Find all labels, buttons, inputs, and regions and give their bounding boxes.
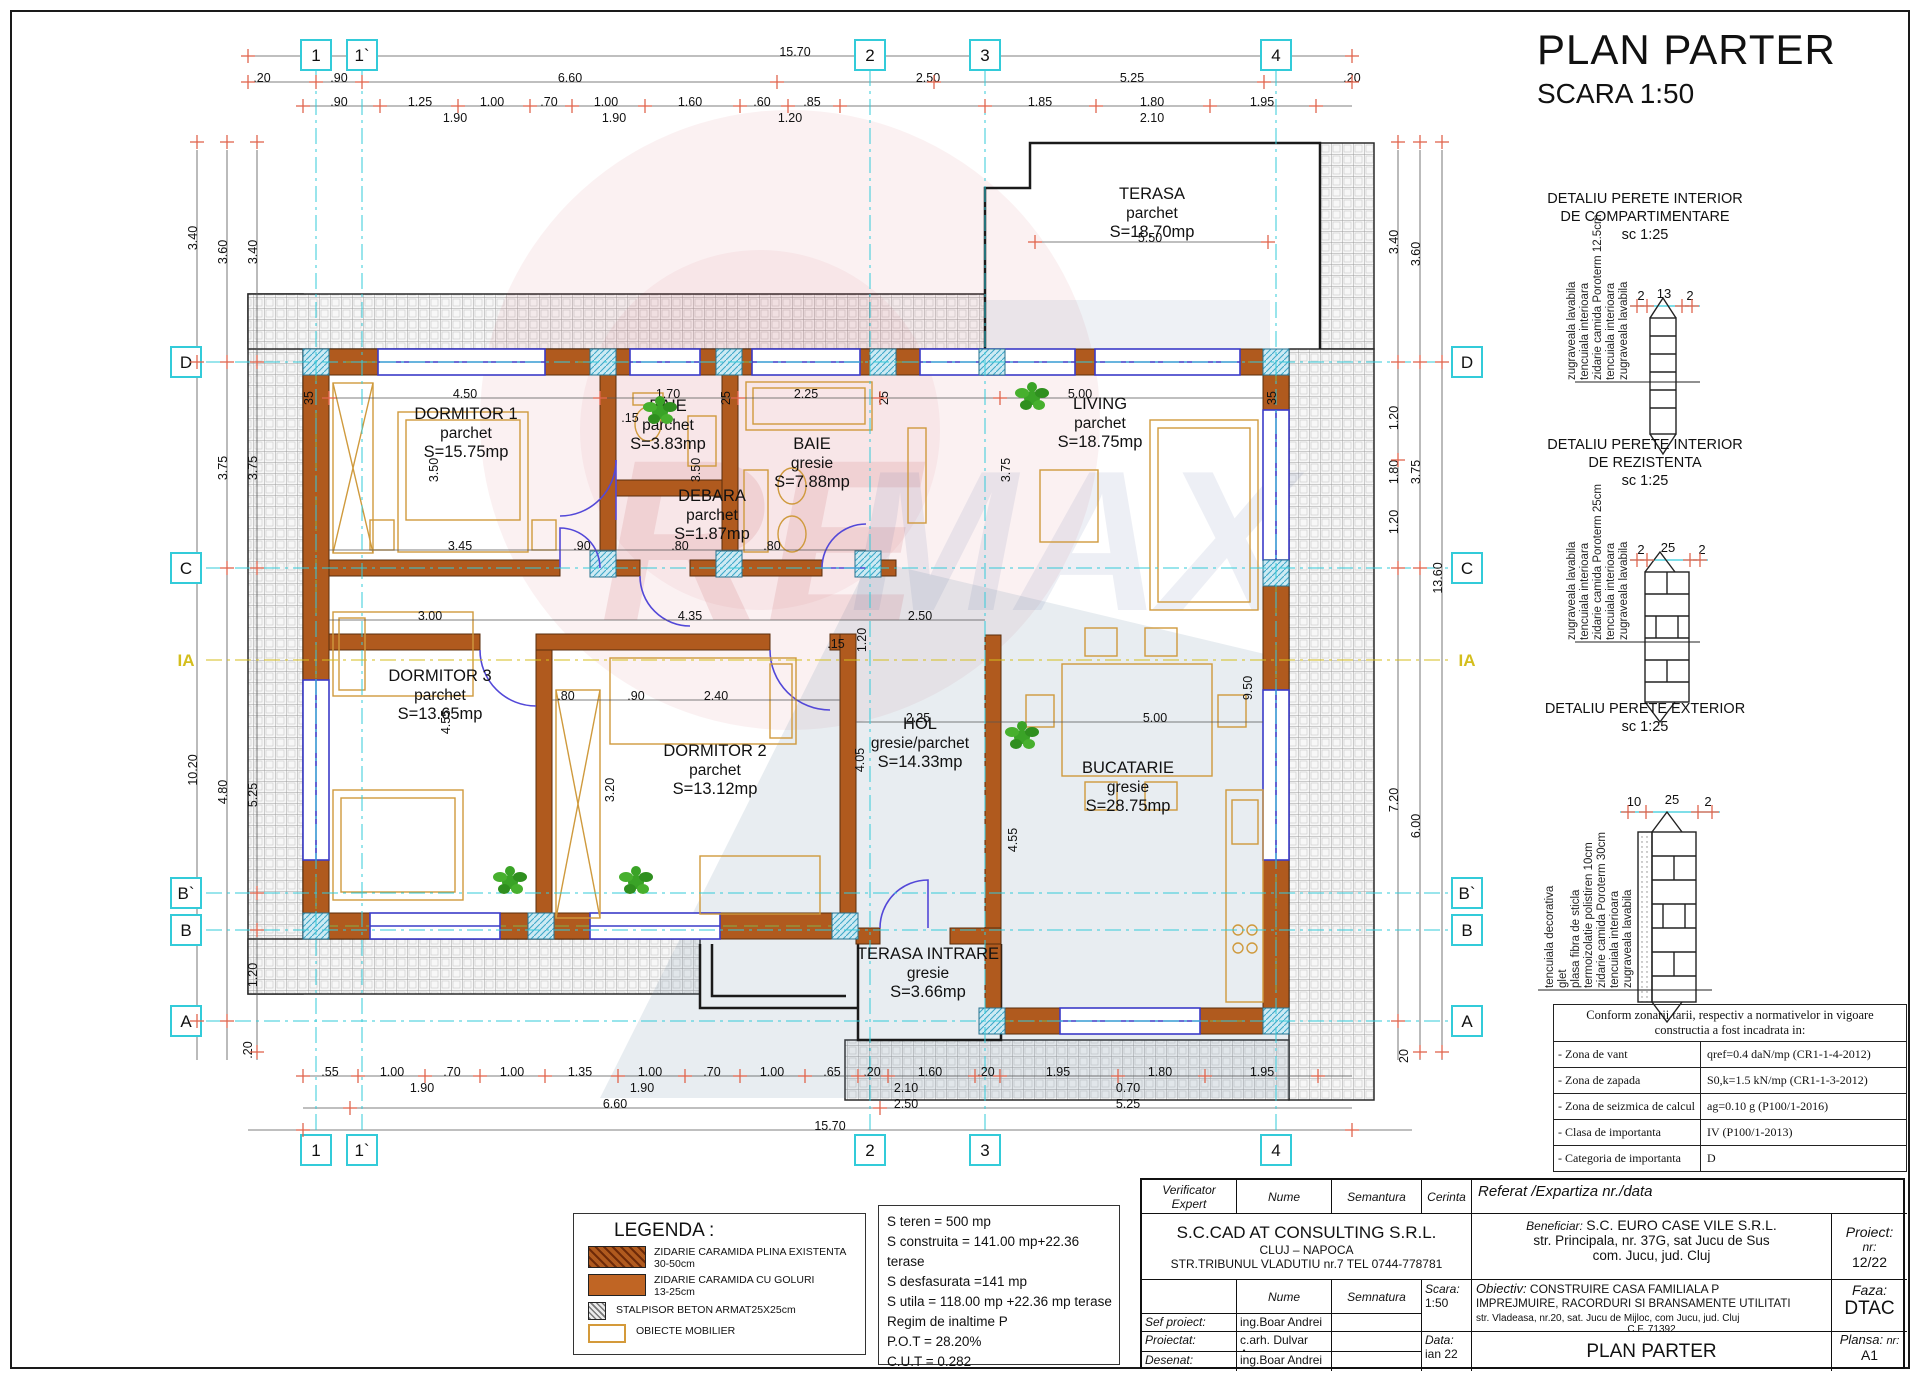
dim-tick: [1257, 75, 1271, 89]
grid-marker-label: C: [180, 559, 192, 578]
room-label-line: BAIE: [793, 435, 831, 453]
norms-table: Conform zonarii tarii, respectiv a norma…: [1553, 1004, 1907, 1172]
tb-plansa-title: PLAN PARTER: [1472, 1332, 1832, 1371]
dim-label: 2.50: [908, 609, 932, 623]
dim-label: 6.60: [558, 71, 582, 85]
dim-label: 1.95: [1250, 95, 1274, 109]
dim-label: 2.25: [794, 387, 818, 401]
detail-3-layers: tencuiala decorativa glet plasa fibra de…: [1544, 832, 1635, 988]
legend-swatch-column: [588, 1302, 606, 1320]
dim-label: 1.60: [678, 95, 702, 109]
dim-tick: [1089, 99, 1103, 113]
grid-marker-label: 4: [1271, 46, 1280, 65]
dim-tick: [309, 75, 323, 89]
dim-label: .60: [753, 95, 770, 109]
room-label-line: DORMITOR 3: [388, 667, 491, 685]
room-label: DORMITOR 3parchetS=13.65mp: [388, 667, 491, 723]
dim-label: 0.70: [1116, 1081, 1140, 1095]
dim-label: 1.00: [760, 1065, 784, 1079]
dim-label: 7.20: [1387, 788, 1401, 812]
dim-label: 15.70: [779, 45, 810, 59]
dim-label: 13.60: [1431, 562, 1445, 593]
dim-label: 2.40: [704, 689, 728, 703]
tb-company: S.C.CAD AT CONSULTING S.R.L. CLUJ – NAPO…: [1142, 1214, 1472, 1280]
tb-scara: Scara:1:50: [1422, 1280, 1472, 1332]
dim-label: 1.20: [1387, 510, 1401, 534]
title-block: VerificatorExpert Nume Semantura Cerinta…: [1140, 1178, 1905, 1369]
grid-marker-label: 3: [980, 46, 989, 65]
tb-proiectat-name: c.arh. Dulvar Ana: [1237, 1332, 1332, 1352]
room-label-line: gresie/parchet: [871, 735, 970, 752]
dim-label: 35: [302, 391, 316, 405]
dim-tick: [1413, 355, 1427, 369]
plant-icon: [493, 866, 527, 894]
dim-tick: [1413, 561, 1427, 575]
tb-sig3: [1332, 1352, 1422, 1371]
room-label-line: S=15.75mp: [424, 443, 509, 461]
dim-tick: [296, 99, 310, 113]
dim-label: 3.40: [186, 226, 200, 250]
grid-marker-label: B: [180, 921, 191, 940]
room-label-line: DORMITOR 2: [663, 742, 766, 760]
dim-tick: [343, 1101, 357, 1115]
dim-tick: [1345, 1123, 1359, 1137]
grid-marker-label: B: [1461, 921, 1472, 940]
room-label-line: parchet: [1126, 205, 1178, 222]
room-label-line: parchet: [1074, 415, 1126, 432]
legend: LEGENDA : ZIDARIE CARAMIDA PLINA EXISTEN…: [573, 1213, 866, 1355]
room-label-line: BUCATARIE: [1082, 759, 1174, 777]
room-label-line: TERASA INTRARE: [857, 945, 999, 963]
dim-tick: [220, 355, 234, 369]
dim-tick: [220, 1014, 234, 1028]
tb-proiect-nr: Proiect: nr: 12/22: [1832, 1214, 1907, 1280]
tb-cerinta: Cerinta: [1422, 1180, 1472, 1214]
dim-label: 4.05: [853, 748, 867, 772]
tb-desenat-label: Desenat:: [1142, 1352, 1237, 1371]
dim-label: 1.00: [638, 1065, 662, 1079]
dim-label: 1.60: [918, 1065, 942, 1079]
dim-tick: [220, 561, 234, 575]
dim-label: .90: [330, 71, 347, 85]
grid-marker-label: B`: [1459, 884, 1476, 903]
tb-sig2: [1332, 1332, 1422, 1352]
detail-1-title: DETALIU PERETE INTERIORDE COMPARTIMENTAR…: [1525, 190, 1765, 244]
dim-label: 1.90: [443, 111, 467, 125]
grid-marker-label: IA: [178, 651, 195, 670]
grid-marker-label: 1: [311, 1141, 320, 1160]
dim-tick: [296, 1069, 310, 1083]
dim-label: 2.10: [894, 1081, 918, 1095]
dim-label: .20: [977, 1065, 994, 1079]
dim-label: 1.20: [855, 628, 869, 652]
dim-tick: [1309, 99, 1323, 113]
grid-marker-label: 1`: [354, 1141, 369, 1160]
dim-label: 6.60: [603, 1097, 627, 1111]
room-label: DORMITOR 2parchetS=13.12mp: [663, 742, 766, 798]
dim-tick: [1435, 355, 1449, 369]
tb-proiectat-label: Proiectat:: [1142, 1332, 1237, 1352]
dim-tick: [373, 99, 387, 113]
dim-label: 1.90: [630, 1081, 654, 1095]
grid-marker-label: C: [1461, 559, 1473, 578]
dim-label: 3.60: [216, 240, 230, 264]
tb-faza: Faza: DTAC: [1832, 1280, 1907, 1332]
dim-tick: [220, 135, 234, 149]
room-label-line: gresie: [1107, 779, 1149, 796]
dim-label: .65: [823, 1065, 840, 1079]
room-label-line: S=3.66mp: [890, 983, 966, 1001]
room-label-line: gresie: [907, 965, 949, 982]
legend-swatch-existing-wall: [588, 1246, 646, 1268]
room-label-line: S=14.33mp: [878, 753, 963, 771]
dim-tick: [770, 75, 784, 89]
tb-sig1: [1332, 1314, 1422, 1332]
dim-label: 2.50: [894, 1097, 918, 1111]
svg-text:13: 13: [1657, 286, 1671, 301]
dim-tick: [638, 99, 652, 113]
dim-tick: [1691, 805, 1705, 819]
dim-label: 4.50: [453, 387, 477, 401]
tb-obiectiv: Obiectiv: CONSTRUIRE CASA FAMILIALA P IM…: [1472, 1280, 1832, 1332]
room-label-line: LIVING: [1073, 395, 1127, 413]
room-label-line: DORMITOR 1: [414, 405, 517, 423]
dim-tick: [1435, 135, 1449, 149]
room-label-line: S=3.83mp: [630, 435, 706, 453]
tb-beneficiar: Beneficiar: S.C. EURO CASE VILE S.R.L. s…: [1472, 1214, 1832, 1280]
dim-label: 5.25: [246, 783, 260, 807]
dim-label: .15: [621, 411, 638, 425]
dim-label: 3.75: [246, 456, 260, 480]
tb-verificator: VerificatorExpert: [1142, 1180, 1237, 1214]
dim-tick: [473, 1069, 487, 1083]
room-label: TERASAparchetS=18.70mp: [1110, 185, 1195, 241]
dim-label: 1.20: [246, 963, 260, 987]
dim-label: 1.20: [778, 111, 802, 125]
dim-label: 5.25: [1120, 71, 1144, 85]
dim-tick: [351, 1069, 365, 1083]
room-label-line: parchet: [686, 507, 738, 524]
grid-marker-label: 2: [865, 1141, 874, 1160]
grid-marker-label: 2: [865, 46, 874, 65]
tb-sef-label: Sef proiect:: [1142, 1314, 1237, 1332]
detail-3-title: DETALIU PERETE EXTERIORsc 1:25: [1525, 700, 1765, 736]
page-title: PLAN PARTER: [1537, 26, 1836, 74]
dim-label: 1.90: [602, 111, 626, 125]
dim-label: 4.35: [678, 609, 702, 623]
dim-label: .20: [863, 1065, 880, 1079]
dim-label: 1.80: [1140, 95, 1164, 109]
svg-text:2: 2: [1637, 542, 1644, 557]
detail-2-title: DETALIU PERETE INTERIORDE REZISTENTAsc 1…: [1525, 436, 1765, 490]
svg-text:10: 10: [1627, 794, 1641, 809]
dim-label: 1.20: [1387, 406, 1401, 430]
dim-label: 3.45: [448, 539, 472, 553]
dim-label: 1.85: [1028, 95, 1052, 109]
dim-tick: [1391, 355, 1405, 369]
detail-2-layers: zugraveala lavabila tencuiala interioara…: [1566, 484, 1631, 640]
dim-label: 10.20: [186, 754, 200, 785]
svg-text:2: 2: [1637, 288, 1644, 303]
tb-plansa-nr: Plansa: nr: A1: [1832, 1332, 1907, 1371]
dim-tick: [1435, 1045, 1449, 1059]
room-label-line: parchet: [689, 762, 741, 779]
dim-label: 3.00: [418, 609, 442, 623]
room-label-line: S=28.75mp: [1086, 797, 1171, 815]
dim-label: .80: [557, 689, 574, 703]
dim-label: 9.50: [1241, 676, 1255, 700]
dim-tick: [1391, 1014, 1405, 1028]
dim-label: 1.00: [500, 1065, 524, 1079]
svg-text:25: 25: [1661, 540, 1675, 555]
room-label-line: S=7.88mp: [774, 473, 850, 491]
dim-tick: [538, 1069, 552, 1083]
dim-label: 2.50: [916, 71, 940, 85]
dim-label: .85: [803, 95, 820, 109]
dim-tick: [1413, 135, 1427, 149]
room-label-line: gresie: [791, 455, 833, 472]
room-label-line: S=1.87mp: [674, 525, 750, 543]
dim-label: 3.20: [603, 778, 617, 802]
dim-label: .90: [573, 539, 590, 553]
dim-tick: [1345, 49, 1359, 63]
dim-tick: [1203, 99, 1217, 113]
room-label-line: S=13.65mp: [398, 705, 483, 723]
dim-label: .15: [827, 637, 844, 651]
grid-marker-label: A: [1461, 1012, 1473, 1031]
dim-label: 3.75: [999, 458, 1013, 482]
room-label-line: parchet: [414, 687, 466, 704]
grid-marker-label: B`: [178, 884, 195, 903]
dim-tick: [250, 135, 264, 149]
plant-icon: [619, 866, 653, 894]
dim-label: 5.25: [1116, 1097, 1140, 1111]
dim-label: 1.80: [1148, 1065, 1172, 1079]
dim-label: .70: [443, 1065, 460, 1079]
dim-label: 25: [719, 391, 733, 405]
dim-label: 1.95: [1046, 1065, 1070, 1079]
dim-label: 1.80: [1387, 460, 1401, 484]
tb-blank: [1142, 1280, 1237, 1314]
dim-label: 15.70: [814, 1119, 845, 1133]
dim-label: 1.90: [410, 1081, 434, 1095]
grid-marker-label: 4: [1271, 1141, 1280, 1160]
dim-label: 20: [1397, 1049, 1411, 1063]
dim-label: 3.40: [1387, 230, 1401, 254]
tb-semantura: Semantura: [1332, 1180, 1422, 1214]
dim-label: 6.00: [1409, 814, 1423, 838]
dim-tick: [978, 99, 992, 113]
grid-marker-label: D: [1461, 353, 1473, 372]
dim-tick: [1391, 561, 1405, 575]
dim-label: 3.40: [246, 240, 260, 264]
dim-tick: [523, 99, 537, 113]
room-label-line: TERASA: [1119, 185, 1185, 203]
grid-marker-label: IA: [1459, 651, 1476, 670]
dim-tick: [1391, 135, 1405, 149]
detail-1-layers: zugraveala lavabila tencuiala interioara…: [1566, 214, 1631, 380]
dim-label: .70: [703, 1065, 720, 1079]
dim-label: 4.55: [1006, 828, 1020, 852]
svg-text:2: 2: [1704, 794, 1711, 809]
dim-label: 1.95: [1250, 1065, 1274, 1079]
tb-nume2: Nume: [1237, 1280, 1332, 1314]
dim-tick: [565, 99, 579, 113]
dim-label: .70: [540, 95, 557, 109]
dim-tick: [190, 135, 204, 149]
legend-swatch-brick-wall: [588, 1274, 646, 1296]
dim-label: .90: [627, 689, 644, 703]
dim-tick: [873, 1101, 887, 1115]
room-label-line: S=13.12mp: [673, 780, 758, 798]
tb-data: Data:ian 22: [1422, 1332, 1472, 1371]
room-label-line: DEBARA: [678, 487, 746, 505]
page-scale: SCARA 1:50: [1537, 78, 1694, 110]
grid-marker-label: 1: [311, 46, 320, 65]
dim-label: 1.00: [594, 95, 618, 109]
dim-label: .20: [241, 1041, 255, 1058]
dim-label: 4.80: [216, 780, 230, 804]
tb-nume: Nume: [1237, 1180, 1332, 1214]
dim-label: 2.10: [1140, 111, 1164, 125]
tb-sef-name: ing.Boar Andrei: [1237, 1314, 1332, 1332]
dim-label: 1.25: [408, 95, 432, 109]
area-statistics: S teren = 500 mpS construita = 141.00 mp…: [878, 1205, 1120, 1365]
room-label-line: parchet: [440, 425, 492, 442]
svg-text:25: 25: [1665, 792, 1679, 807]
dim-label: 1.00: [380, 1065, 404, 1079]
tb-semnatura2: Semnatura: [1332, 1280, 1422, 1314]
dim-label: 3.75: [1409, 460, 1423, 484]
grid-marker-label: 1`: [354, 46, 369, 65]
legend-title: LEGENDA :: [614, 1220, 865, 1242]
legend-swatch-furniture: [588, 1324, 626, 1343]
dim-tick: [355, 75, 369, 89]
dim-label: 3.60: [1409, 242, 1423, 266]
tb-referat: Referat /Expartiza nr./data: [1472, 1180, 1907, 1214]
dim-label: 3.50: [689, 458, 703, 482]
grid-marker-label: 3: [980, 1141, 989, 1160]
dim-label: .80: [763, 539, 780, 553]
room-label-line: S=18.70mp: [1110, 223, 1195, 241]
dim-tick: [241, 49, 255, 63]
dim-tick: [833, 99, 847, 113]
dim-label: 35: [1265, 391, 1279, 405]
dim-label: 3.50: [427, 458, 441, 482]
dim-tick: [1261, 235, 1275, 249]
dim-tick: [733, 99, 747, 113]
dim-label: .90: [330, 95, 347, 109]
dim-label: 3.75: [216, 456, 230, 480]
room-label-line: HOL: [903, 715, 937, 733]
dim-label: 1.00: [480, 95, 504, 109]
room-label-line: S=18.75mp: [1058, 433, 1143, 451]
tb-desenat-name: ing.Boar Andrei: [1237, 1352, 1332, 1371]
dim-label: .20: [253, 71, 270, 85]
dim-label: 1.35: [568, 1065, 592, 1079]
dim-label: 5.00: [1143, 711, 1167, 725]
dim-label: .55: [321, 1065, 338, 1079]
dim-tick: [1413, 1045, 1427, 1059]
